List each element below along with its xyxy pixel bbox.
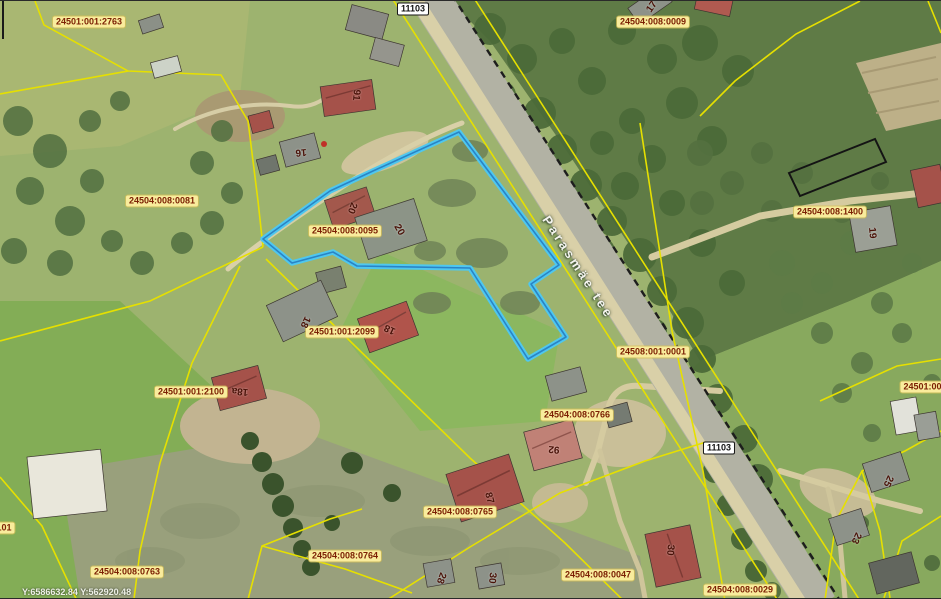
house-number-label: 20 <box>391 222 406 237</box>
map-label-layer: Parasmäe tee Y:6586632.84 Y:562920.48 24… <box>0 1 941 598</box>
house-number-label: 17 <box>644 0 659 15</box>
parcel-label: 24504:008:0765 <box>424 507 496 518</box>
parcel-label: 24501:001:2100 <box>155 387 227 398</box>
map-canvas[interactable]: Parasmäe tee Y:6586632.84 Y:562920.48 24… <box>0 0 941 599</box>
house-number-label: 23 <box>849 531 864 546</box>
parcel-label: 24504:008:0766 <box>541 410 613 421</box>
house-number-label: 87 <box>482 491 496 505</box>
parcel-label: 24504:008:0095 <box>309 226 381 237</box>
house-number-label: 19 <box>866 227 878 239</box>
parcel-label: 24501:001 <box>900 382 941 393</box>
house-number-label: 25 <box>881 474 896 489</box>
road-number-badge: 11103 <box>703 442 735 455</box>
house-number-label: 20 <box>345 201 359 215</box>
road-name-label: Parasmäe tee <box>539 213 617 322</box>
parcel-label: 24504:008:0763 <box>91 567 163 578</box>
house-number-label: 18a <box>231 385 249 397</box>
house-number-label: 92 <box>548 443 560 455</box>
parcel-label: 24504:008:0009 <box>617 17 689 28</box>
parcel-label: 24504:008:0764 <box>309 551 381 562</box>
parcel-label: 24504:008:0047 <box>562 570 634 581</box>
parcel-label: 24508:001:0001 <box>617 347 689 358</box>
parcel-label: 24501:001:2763 <box>53 17 125 28</box>
house-number-label: 30 <box>664 544 676 556</box>
house-number-label: 18 <box>383 322 398 337</box>
house-number-label: 28 <box>434 571 448 585</box>
house-number-label: 91 <box>350 89 362 101</box>
parcel-label: 24504:008:1400 <box>794 207 866 218</box>
house-number-label: 16 <box>295 146 307 158</box>
cursor-coordinates-readout: Y:6586632.84 Y:562920.48 <box>22 587 131 597</box>
parcel-label: 24504:008:0081 <box>126 196 198 207</box>
house-number-label: 30 <box>486 572 498 584</box>
parcel-label: 101 <box>0 523 15 534</box>
road-number-badge: 11103 <box>397 3 429 16</box>
parcel-label: 24501:001:2099 <box>306 327 378 338</box>
parcel-label: 24504:008:0029 <box>704 585 776 596</box>
